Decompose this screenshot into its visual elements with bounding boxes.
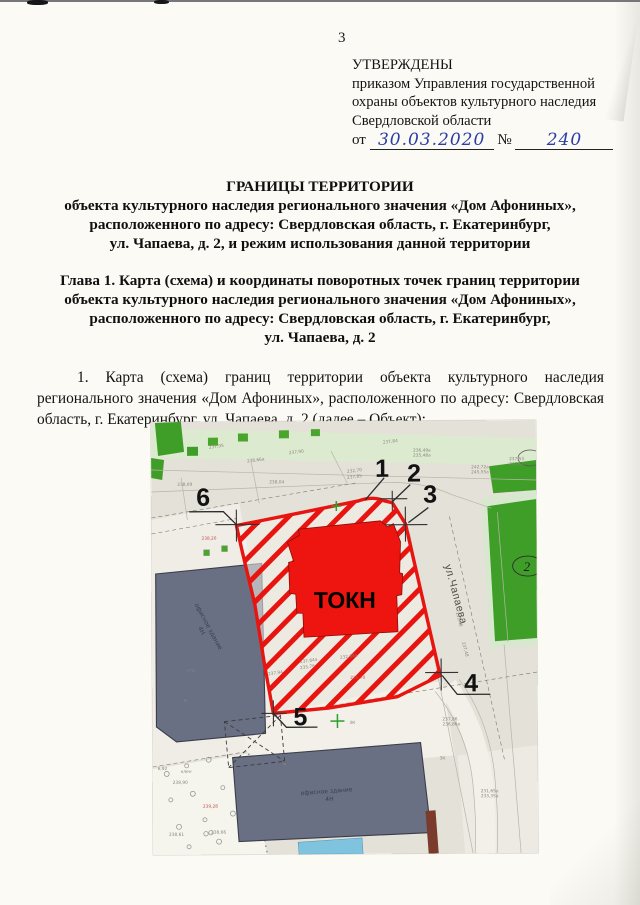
svg-text:235,70: 235,70	[350, 675, 365, 681]
date-underline: 30.03.2020	[370, 132, 494, 150]
green-area	[155, 422, 184, 456]
office-building-2	[156, 563, 266, 742]
svg-text:238,04: 238,04	[269, 479, 284, 485]
chapter1-heading: Глава 1. Карта (схема) и координаты пово…	[28, 271, 612, 347]
approval-block: УТВЕРЖДЕНЫ приказом Управления государст…	[352, 56, 618, 150]
zk-label: ЗК	[349, 720, 355, 726]
chapter-line: Глава 1. Карта (схема) и координаты пово…	[28, 271, 612, 290]
point-label-4: 4	[464, 669, 478, 697]
title-line: ул. Чапаева, д. 2, и режим использования…	[28, 234, 612, 253]
chapter-line: ул. Чапаева, д. 2	[28, 328, 612, 347]
okn-building	[287, 521, 403, 638]
title-line: объекта культурного наследия регионально…	[28, 196, 612, 215]
tree-species-label: клен	[181, 770, 192, 775]
point-label-2: 2	[407, 460, 421, 488]
green-square	[204, 550, 210, 556]
approval-line: Свердловской области	[352, 112, 618, 131]
title-line: ГРАНИЦЫ ТЕРРИТОРИИ	[28, 177, 612, 196]
svg-text:4Н: 4Н	[325, 796, 334, 804]
scanned-document-page: 3 УТВЕРЖДЕНЫ приказом Управления государ…	[0, 0, 640, 905]
handwritten-number: 240	[547, 130, 582, 150]
cadastral-map-svg: 2	[151, 420, 538, 855]
from-label: от	[352, 132, 366, 148]
green-square	[238, 434, 248, 442]
svg-text:236,86а: 236,86а	[442, 721, 460, 727]
svg-text:ж: ж	[183, 699, 187, 704]
svg-text:238,90: 238,90	[173, 780, 188, 786]
paper-fold-shadow	[550, 755, 640, 905]
approval-line: приказом Управления государственной	[352, 75, 618, 94]
point-label-3: 3	[423, 481, 437, 509]
okn-label: ТОКН	[314, 587, 376, 613]
green-area	[151, 458, 164, 480]
green-square	[279, 430, 289, 438]
svg-text:238,20: 238,20	[201, 536, 216, 542]
svg-text:233,35а: 233,35а	[481, 793, 499, 799]
number-sign-label: №	[497, 132, 511, 148]
svg-text:235,48а: 235,48а	[413, 453, 431, 459]
svg-text:238,61: 238,61	[169, 832, 184, 838]
svg-text:237,61: 237,61	[509, 461, 524, 467]
svg-text:ж: ж	[283, 762, 287, 767]
svg-text:238,09: 238,09	[177, 482, 192, 488]
handwritten-date: 30.03.2020	[378, 130, 485, 150]
zk-label: ЗК	[440, 755, 446, 761]
approval-line: УТВЕРЖДЕНЫ	[352, 56, 618, 75]
svg-text:239,28: 239,28	[203, 804, 218, 810]
chapter-line: объекта культурного наследия регионально…	[28, 290, 612, 309]
point-label-6: 6	[196, 484, 210, 512]
svg-text:стн: стн	[187, 669, 195, 674]
scan-artifact-blob	[27, 0, 48, 5]
approval-line: охраны объектов культурного наследия	[352, 93, 618, 112]
scan-artifact-blob	[154, 0, 169, 4]
chapter-line: расположенного по адресу: Свердловская о…	[28, 309, 612, 328]
approval-date-line: от 30.03.2020 № 240	[352, 131, 618, 150]
document-title: ГРАНИЦЫ ТЕРРИТОРИИ объекта культурного н…	[28, 177, 612, 253]
scan-edge-line	[0, 0, 640, 2]
number-underline: 240	[515, 132, 613, 150]
svg-text:238,66: 238,66	[211, 830, 226, 836]
green-square	[187, 447, 198, 456]
green-square	[222, 546, 228, 552]
svg-text:6,92: 6,92	[158, 766, 168, 772]
svg-text:245,55а: 245,55а	[471, 469, 489, 475]
page-number: 3	[338, 30, 346, 47]
boundary-map: 2	[151, 420, 538, 855]
point-label-1: 1	[375, 455, 389, 483]
title-line: расположенного по адресу: Свердловская о…	[28, 215, 612, 234]
green-parcel-number: 2	[524, 559, 531, 574]
green-square	[311, 429, 320, 436]
point-label-5: 5	[293, 703, 307, 731]
